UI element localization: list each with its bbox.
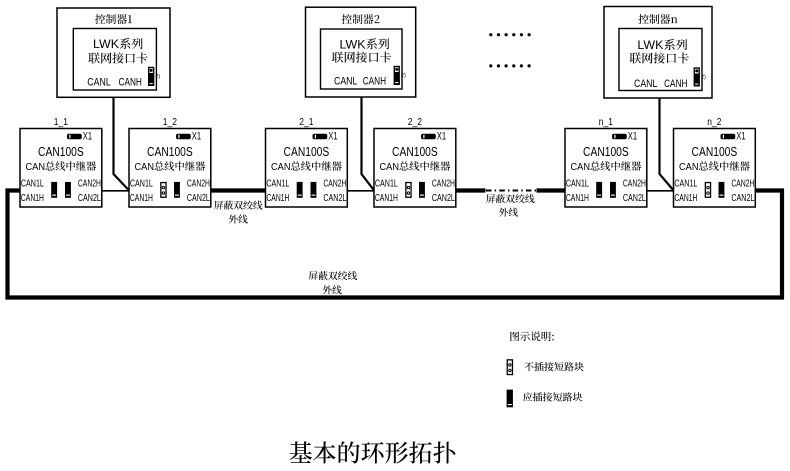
svg-text:CAN100S: CAN100S: [583, 145, 629, 159]
svg-text:LWK: LWK: [637, 38, 663, 52]
svg-text:CAN1H: CAN1H: [266, 193, 289, 204]
svg-text:CAN1L: CAN1L: [375, 178, 398, 189]
svg-text:CAN2L: CAN2L: [432, 193, 455, 204]
svg-text:CAN2L: CAN2L: [187, 193, 210, 204]
svg-text:1_1: 1_1: [54, 117, 68, 128]
svg-text:CAN2L: CAN2L: [623, 193, 646, 204]
svg-text:LWK: LWK: [340, 37, 366, 51]
svg-text:CAN1L: CAN1L: [21, 178, 44, 189]
svg-text:CAN1L: CAN1L: [674, 178, 697, 189]
svg-text:CANH: CANH: [664, 78, 687, 90]
svg-text:CANH: CANH: [119, 77, 142, 89]
svg-text:CAN1L: CAN1L: [266, 178, 289, 189]
svg-text:CAN: CAN: [679, 162, 699, 173]
svg-text:LWK: LWK: [93, 37, 119, 51]
svg-text:CAN1H: CAN1H: [674, 193, 697, 204]
svg-text:CAN: CAN: [571, 162, 591, 173]
svg-text:CAN100S: CAN100S: [392, 145, 438, 159]
svg-text:CAN2H: CAN2H: [623, 178, 646, 189]
svg-text:CAN100S: CAN100S: [38, 145, 84, 159]
svg-text:CAN100S: CAN100S: [284, 145, 330, 159]
svg-text:CAN100S: CAN100S: [692, 145, 738, 159]
svg-text:CAN2L: CAN2L: [323, 193, 346, 204]
svg-text:CAN: CAN: [135, 162, 155, 173]
svg-text:CANL: CANL: [87, 77, 110, 89]
svg-text:CANL: CANL: [634, 78, 657, 90]
svg-text:X1: X1: [736, 131, 745, 143]
svg-text:CAN1H: CAN1H: [21, 193, 44, 204]
svg-text:2): 2): [701, 75, 706, 81]
svg-text:2_1: 2_1: [299, 117, 313, 128]
svg-text:CAN: CAN: [271, 162, 291, 173]
svg-text:CAN1L: CAN1L: [130, 178, 153, 189]
svg-text:2): 2): [401, 73, 406, 79]
svg-text:CAN2L: CAN2L: [731, 193, 754, 204]
svg-text:n_2: n_2: [707, 117, 721, 128]
svg-text:CAN1H: CAN1H: [566, 193, 589, 204]
svg-text:2_2: 2_2: [408, 117, 422, 128]
svg-text:1_2: 1_2: [163, 117, 177, 128]
svg-text:CANL: CANL: [334, 76, 357, 88]
svg-text:X1: X1: [83, 131, 92, 143]
svg-text:CAN: CAN: [380, 162, 400, 173]
svg-text:CAN1L: CAN1L: [566, 178, 589, 189]
svg-text:X1: X1: [192, 131, 201, 143]
svg-text:CANH: CANH: [363, 76, 386, 88]
svg-text:CAN1H: CAN1H: [130, 193, 153, 204]
svg-text:CAN2H: CAN2H: [731, 178, 754, 189]
svg-text:n_1: n_1: [599, 117, 613, 128]
svg-text:X1: X1: [328, 131, 337, 143]
svg-text:CAN100S: CAN100S: [147, 145, 193, 159]
svg-text:CAN2H: CAN2H: [187, 178, 210, 189]
svg-text:CAN: CAN: [26, 162, 46, 173]
svg-text:CAN1H: CAN1H: [375, 193, 398, 204]
svg-text:CAN2L: CAN2L: [78, 193, 101, 204]
svg-text:CAN2H: CAN2H: [323, 178, 346, 189]
svg-text:CAN2H: CAN2H: [432, 178, 455, 189]
svg-text:2): 2): [155, 74, 160, 80]
svg-text:CAN2H: CAN2H: [78, 178, 101, 189]
svg-text:X1: X1: [628, 131, 637, 143]
svg-text:X1: X1: [437, 131, 446, 143]
